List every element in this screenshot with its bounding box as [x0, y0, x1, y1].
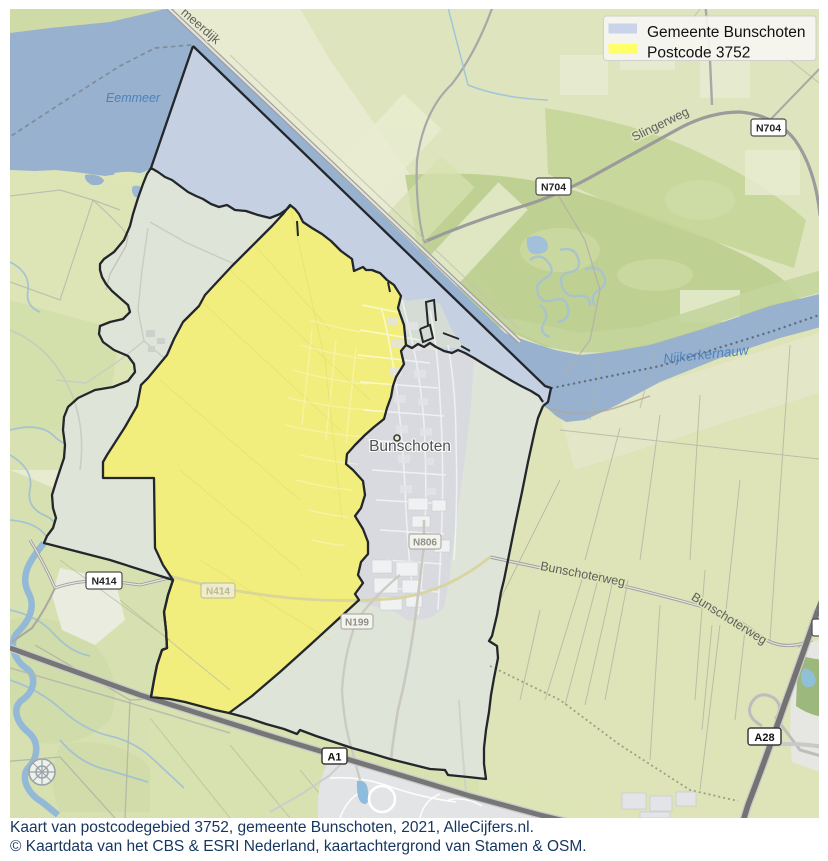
svg-text:A1: A1: [327, 752, 341, 764]
svg-text:A28: A28: [754, 732, 774, 744]
svg-text:N414: N414: [206, 587, 230, 598]
svg-text:N199: N199: [345, 618, 369, 629]
svg-text:N704: N704: [541, 182, 566, 194]
svg-text:N806: N806: [413, 538, 437, 549]
svg-text:Postcode 3752: Postcode 3752: [647, 45, 750, 62]
svg-text:Gemeente Bunschoten: Gemeente Bunschoten: [647, 24, 806, 41]
svg-text:N414: N414: [91, 576, 116, 588]
svg-text:Bunschoten: Bunschoten: [369, 438, 451, 455]
svg-text:Eemmeer: Eemmeer: [106, 91, 161, 105]
svg-text:N704: N704: [756, 123, 781, 135]
